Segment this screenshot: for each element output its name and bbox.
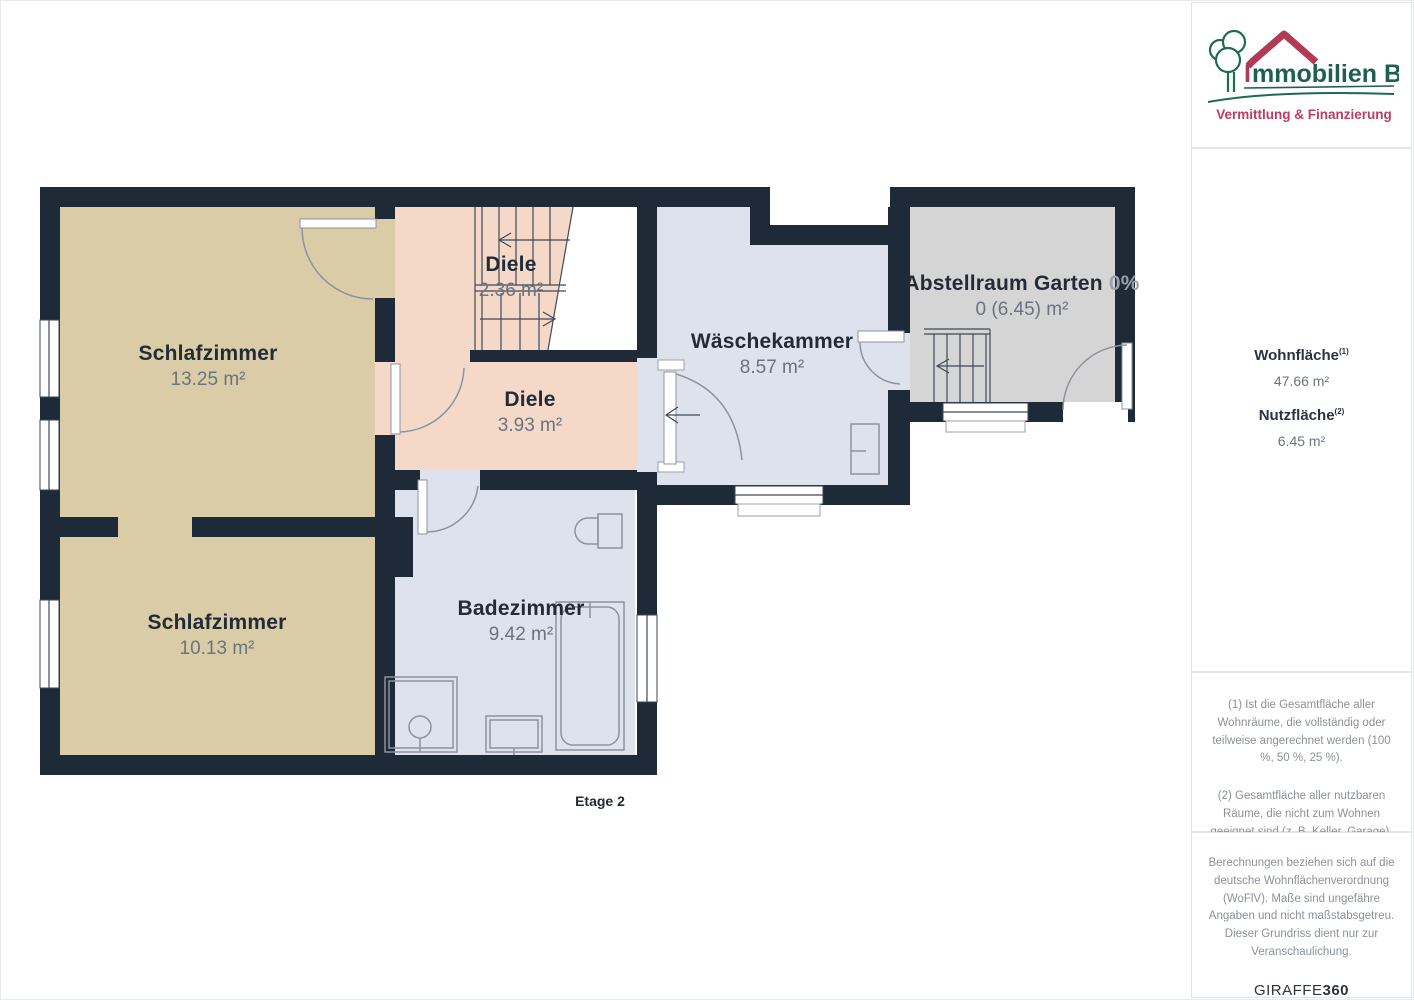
metrics-box: Wohnfläche(1) 47.66 m² Nutzfläche(2) 6.4…: [1191, 148, 1412, 672]
footnotes-box: (1) Ist die Gesamtfläche aller Wohnräume…: [1191, 672, 1412, 832]
room-name: Schlafzimmer: [139, 342, 278, 366]
door-leaf-abstellraum-outer: [1122, 343, 1132, 409]
label-waeschekammer: Wäschekammer 8.57 m²: [691, 330, 853, 379]
room-area: 8.57 m²: [691, 357, 853, 379]
room-name: Diele: [479, 253, 543, 277]
metric-wohnflaeche: Wohnfläche(1) 47.66 m²: [1192, 347, 1411, 389]
metric-label: Wohnfläche(1): [1192, 347, 1411, 364]
room-name: Schlafzimmer: [148, 611, 287, 635]
room-area: 10.13 m²: [148, 638, 287, 660]
label-abstellraum: Abstellraum Garten 0% 0 (6.45) m²: [904, 272, 1139, 321]
metric-label: Nutzfläche(2): [1192, 407, 1411, 424]
metric-value: 47.66 m²: [1192, 373, 1411, 389]
brand-suffix: 360: [1322, 982, 1349, 999]
window-sill-abstellraum: [946, 421, 1025, 432]
logo-box: I mmobilien Bart Vermittlung & Finanzier…: [1191, 2, 1412, 148]
door-leaf-diele: [391, 364, 400, 434]
room-percent: 0%: [1109, 272, 1140, 295]
room-name: Abstellraum Garten 0%: [904, 272, 1139, 296]
room-area: 13.25 m²: [139, 369, 278, 391]
logo-tree-icon: [1210, 31, 1245, 92]
logo-swoosh: [1208, 93, 1394, 102]
room-name: Diele: [498, 388, 562, 412]
door-frame-waeschekammer-top: [658, 360, 684, 370]
footnote-ref: (1): [1339, 347, 1349, 356]
room-name: Wäschekammer: [691, 330, 853, 354]
room-area: 3.93 m²: [498, 415, 562, 437]
door-leaf-abstellraum-inner: [858, 331, 904, 342]
logo-subtitle: Vermittlung & Finanzierung: [1216, 107, 1392, 122]
window-sill-waeschekammer: [738, 504, 820, 516]
company-logo: I mmobilien Bart Vermittlung & Finanzier…: [1204, 20, 1399, 130]
label-badezimmer: Badezimmer 9.42 m²: [458, 597, 585, 646]
logo-title: mmobilien Bart: [1252, 60, 1399, 88]
door-leaf-badezimmer: [418, 480, 427, 534]
brand-name: GIRAFFE: [1254, 982, 1323, 999]
floor-label: Etage 2: [575, 793, 625, 809]
room-area: 9.42 m²: [458, 624, 585, 646]
footnote-ref: (2): [1335, 407, 1345, 416]
label-diele-stairs: Diele 2.36 m²: [479, 253, 543, 302]
disclaimer-text: Berechnungen beziehen sich auf die deuts…: [1206, 855, 1397, 962]
room-name: Badezimmer: [458, 597, 585, 621]
door-leaf-schlafzimmer-1: [300, 219, 376, 228]
legal-box: Berechnungen beziehen sich auf die deuts…: [1191, 832, 1412, 998]
label-schlafzimmer-2: Schlafzimmer 10.13 m²: [148, 611, 287, 660]
footnote-1: (1) Ist die Gesamtfläche aller Wohnräume…: [1208, 697, 1395, 768]
floorplan-drawing: [0, 0, 1190, 1000]
metric-nutzflaeche: Nutzfläche(2) 6.45 m²: [1192, 407, 1411, 449]
room-area: 2.36 m²: [479, 280, 543, 302]
metric-value: 6.45 m²: [1192, 433, 1411, 449]
room-area: 0 (6.45) m²: [904, 299, 1139, 321]
label-diele: Diele 3.93 m²: [498, 388, 562, 437]
floorplan-page: Schlafzimmer 13.25 m² Diele 2.36 m² Diel…: [0, 0, 1414, 1000]
logo-title-initial: I: [1244, 60, 1251, 88]
label-schlafzimmer-1: Schlafzimmer 13.25 m²: [139, 342, 278, 391]
giraffe360-brand: GIRAFFE360: [1206, 982, 1397, 999]
